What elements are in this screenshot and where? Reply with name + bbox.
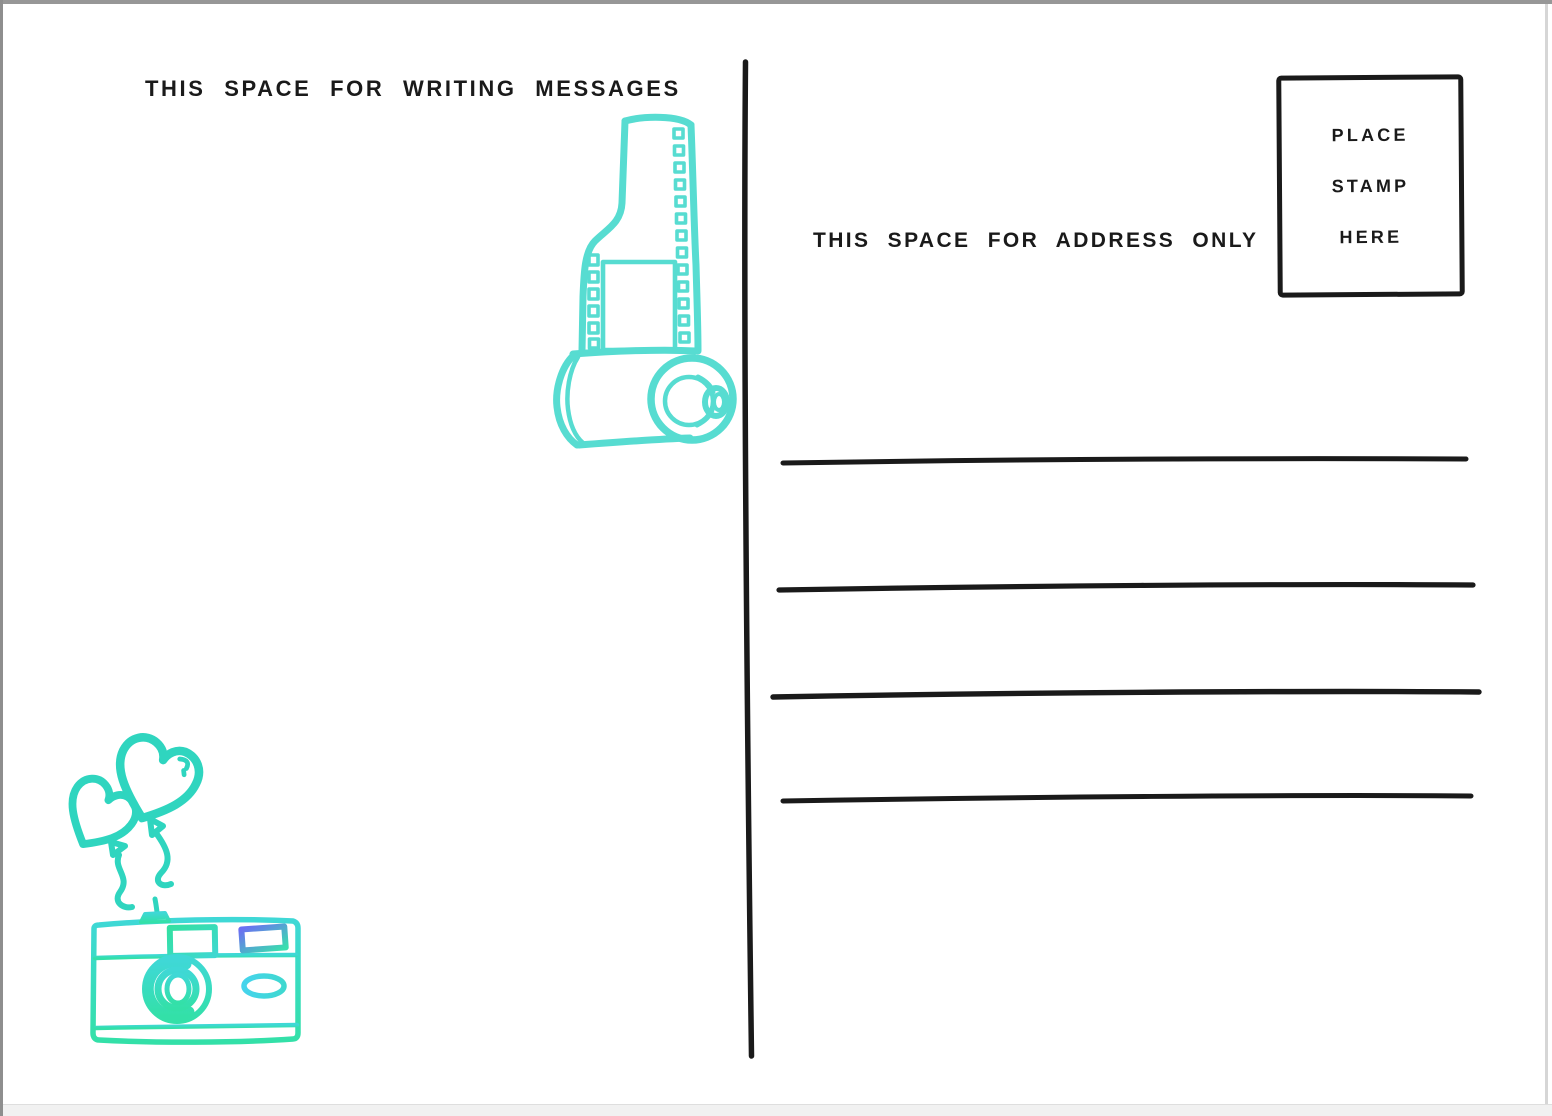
camera-flash-window [241,926,285,950]
film-roll-illustration [543,105,733,455]
balloon-string-left [118,855,132,907]
film-strip-right-edge [691,125,698,351]
postcard-divider-line [745,62,752,1056]
address-line-1 [783,459,1466,463]
film-canister-top [573,350,695,354]
camera-bottom-strip [96,1025,297,1028]
camera-body-group [93,913,298,1042]
postcard-canvas: THIS SPACE FOR WRITING MESSAGES THIS SPA… [0,0,1552,1116]
camera-sensor-oval [244,976,284,996]
film-canister-left-cap-inner [567,357,583,443]
camera-lens-center [167,975,189,1003]
balloon-string-right [156,833,171,885]
address-line-3 [773,692,1479,697]
address-line-4 [783,796,1471,801]
camera-shutter-button [141,913,169,922]
film-sprocket-holes-left [589,255,599,348]
balloon-highlight [175,758,189,774]
address-line-2 [779,585,1473,590]
balloon-string-tip [155,899,157,912]
heart-balloon-back [54,772,143,860]
film-spool-knob-tip [714,394,724,410]
film-frame [603,262,675,350]
film-strip-outline [625,117,691,125]
camera-viewfinder [170,927,215,956]
camera-illustration [55,715,315,1060]
heart-balloons-illustration [54,731,205,912]
heart-balloon-front [104,731,206,831]
